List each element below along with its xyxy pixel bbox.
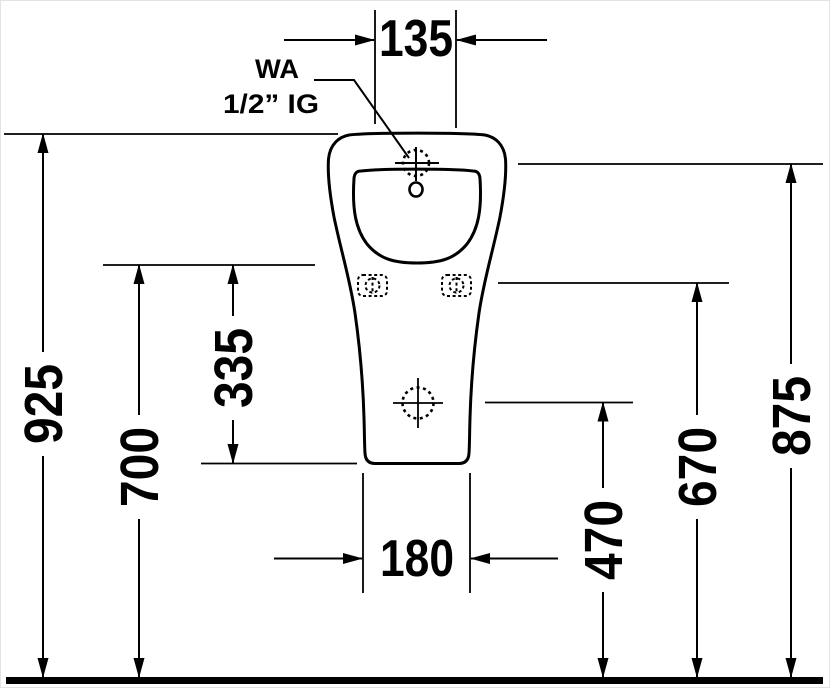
dimension-fixing-height: 670 [498, 283, 729, 677]
dimension-inlet-height: 875 [518, 164, 823, 677]
dimension-base-width: 180 [274, 473, 558, 593]
urinal-body [328, 133, 506, 463]
dimension-outlet-height: 470 [485, 403, 634, 678]
dimension-rim-height: 700 [103, 265, 315, 677]
water-connection-label-line1: WA [255, 54, 299, 84]
dimension-top-width: 135 [284, 10, 547, 128]
urinal-dimension-drawing: WA 1/2” IG 135 925 700 335 180 [1, 1, 830, 688]
dim-label-rim-height: 700 [110, 427, 170, 507]
dimension-rim-to-base: 335 [201, 265, 357, 464]
dimension-overall-height: 925 [4, 134, 338, 677]
dim-label-fixing-height: 670 [668, 427, 728, 507]
inlet-spreader-circle [410, 183, 423, 197]
dim-label-outlet-height: 470 [574, 500, 634, 580]
dim-label-rim-to-base: 335 [204, 328, 264, 408]
dim-label-inlet-height: 875 [762, 376, 822, 456]
dim-label-base-width: 180 [380, 530, 454, 588]
water-connection-label-line2: 1/2” IG [223, 89, 319, 119]
technical-drawing-canvas: WA 1/2” IG 135 925 700 335 180 [0, 0, 830, 688]
dim-label-top-width: 135 [379, 10, 453, 68]
dim-label-overall-height: 925 [14, 364, 74, 444]
